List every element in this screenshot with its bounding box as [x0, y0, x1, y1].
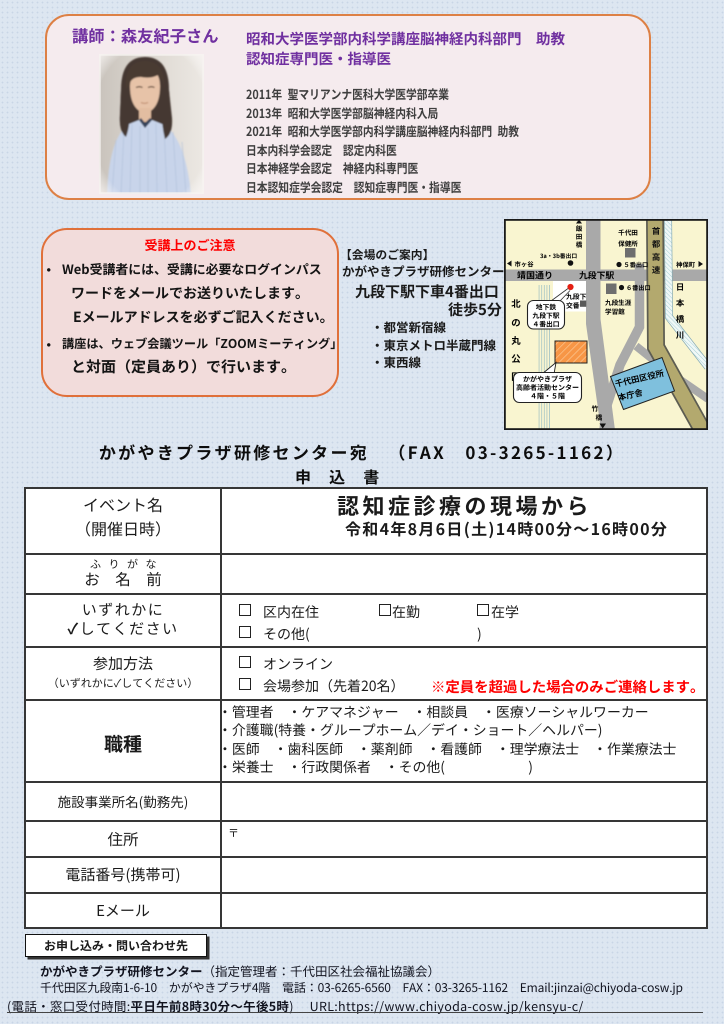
svg-text:川: 川 — [676, 329, 684, 341]
svg-text:橋: 橋 — [596, 412, 603, 422]
svg-text:日: 日 — [676, 281, 684, 293]
svg-text:丸: 丸 — [511, 333, 521, 347]
svg-text:５番出口: ５番出口 — [624, 260, 649, 269]
svg-text:市ヶ谷: 市ヶ谷 — [515, 260, 535, 269]
svg-text:九段下駅: 九段下駅 — [579, 269, 614, 282]
svg-text:保健所: 保健所 — [618, 238, 638, 248]
svg-text:速: 速 — [652, 264, 661, 276]
svg-text:橋: 橋 — [576, 239, 583, 249]
svg-text:北: 北 — [511, 296, 521, 310]
svg-text:橋: 橋 — [676, 313, 685, 325]
svg-text:の: の — [511, 315, 520, 329]
svg-text:６番出口: ６番出口 — [626, 283, 651, 292]
svg-text:高: 高 — [652, 251, 660, 263]
svg-text:公: 公 — [511, 351, 521, 365]
svg-text:神保町: 神保町 — [676, 260, 696, 269]
svg-text:学習館: 学習館 — [605, 306, 625, 316]
svg-text:４階・５階: ４階・５階 — [530, 392, 565, 402]
svg-text:首: 首 — [652, 225, 660, 237]
svg-text:千代田: 千代田 — [618, 227, 638, 237]
svg-text:靖国通り: 靖国通り — [517, 269, 553, 282]
svg-text:交番: 交番 — [566, 300, 580, 310]
svg-text:都: 都 — [652, 238, 661, 250]
svg-text:４番出口: ４番出口 — [532, 319, 559, 329]
svg-text:3a・3b番出口: 3a・3b番出口 — [540, 251, 577, 260]
svg-text:本: 本 — [676, 297, 685, 309]
